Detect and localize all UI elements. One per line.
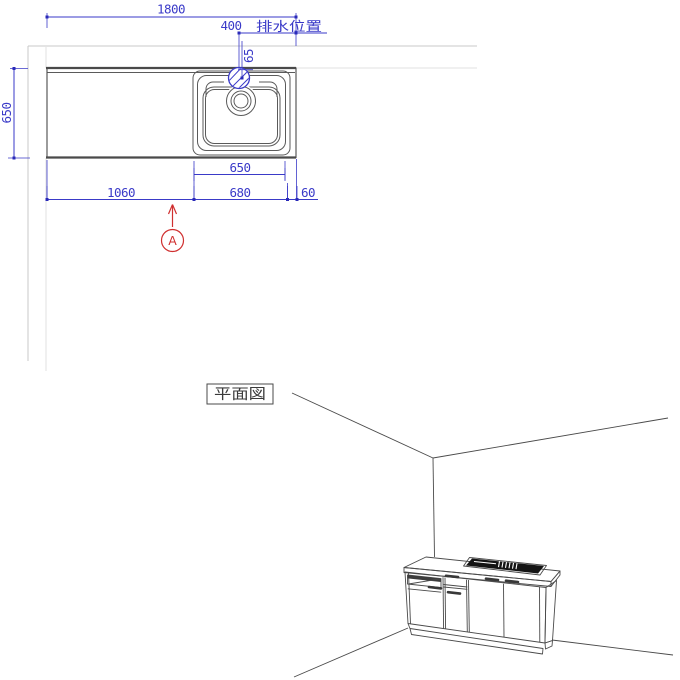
counter-outline (46, 68, 296, 158)
plan-view: 1800 400 排水位置 65 650 (0, 2, 477, 405)
right-door2-handle (506, 581, 518, 582)
dim-drain-offset: 400 排水位置 (220, 18, 327, 69)
right-door1-handle (486, 579, 498, 580)
dim-drain-depth-label: 65 (241, 49, 256, 63)
dim-right-segment-label: 60 (301, 185, 315, 200)
dim-sink-width-label: 650 (229, 160, 250, 175)
marker-a: A (162, 205, 184, 252)
perspective-view (292, 393, 673, 677)
dim-total-width-label: 1800 (157, 2, 185, 17)
dim-left-segment-label: 1060 (107, 185, 135, 200)
cabinet-body (405, 572, 557, 654)
left-door-handle (429, 587, 441, 588)
open-shelf-niche (408, 575, 442, 592)
dim-middle-segment-label: 680 (229, 185, 250, 200)
dim-drain-offset-label: 400 (220, 18, 241, 33)
kitchen-cad-drawing: 1800 400 排水位置 65 650 (0, 0, 680, 680)
drain-position-label: 排水位置 (256, 19, 322, 34)
sink-top-view (464, 558, 547, 576)
technical-drawing-canvas: 1800 400 排水位置 65 650 (0, 0, 680, 680)
drawer-handle (446, 576, 458, 577)
middle-door-handle (448, 592, 460, 593)
dim-counter-depth-label: 650 (0, 102, 14, 123)
dim-counter-depth: 650 (0, 67, 30, 160)
plan-view-title: 平面図 (207, 384, 273, 404)
plan-view-title-label: 平面図 (214, 386, 266, 403)
dim-bottom-chain: 1060 680 60 (46, 159, 319, 201)
marker-a-label: A (168, 233, 177, 248)
drawer-front-lines (444, 585, 468, 590)
cabinet-handles (429, 576, 518, 594)
